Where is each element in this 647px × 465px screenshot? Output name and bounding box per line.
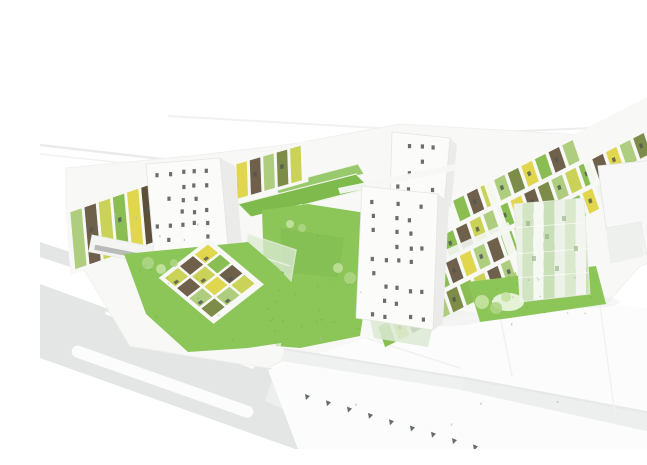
roof-window [253,172,256,177]
grass-dot [349,283,351,285]
facade-window [420,290,423,294]
facade-window [205,169,208,173]
person-speck [557,401,558,403]
grass-dot [512,296,514,298]
facade-window [422,318,425,322]
facade-window [167,238,170,242]
grass-dot [539,296,541,298]
grass-dot [357,328,359,330]
grass-dot [275,301,277,303]
facade-window [383,315,386,319]
facade-window [371,312,374,316]
grass-dot [590,296,592,298]
facade-window [169,224,172,228]
facade-window [420,205,423,209]
roof-panel [290,145,302,183]
facade-window [408,144,411,148]
facade-window [371,257,374,261]
grass-dot [168,283,170,285]
person-speck [115,213,116,215]
grass-dot [519,308,521,310]
facade-window [192,183,195,187]
person-speck [511,323,512,325]
facade-window [395,230,398,234]
facade-window [395,302,398,306]
facade-window [395,245,398,249]
facade-window [421,160,424,164]
roof-panel [236,161,248,199]
facade-window [182,170,185,174]
person-speck [184,239,185,241]
facade-window [167,197,170,201]
facade-window [408,218,411,222]
facade-window [206,234,209,238]
facade-window [372,271,375,275]
facade-window [397,258,400,262]
grass-dot [274,330,276,332]
grass-dot [574,277,576,279]
facade-window [384,285,387,289]
person-speck [197,224,198,226]
grass-dot [508,276,510,278]
grass-dot [567,312,569,314]
roof-panel [263,153,275,191]
glass-stripes [512,196,597,304]
facade-window [410,260,413,264]
grass-dot [270,320,272,322]
tower-facade [146,158,228,254]
grass-dot [228,265,230,267]
facade-window [431,188,434,192]
facade-window [193,169,196,173]
person-speck [355,404,356,406]
glass-stripe [523,196,534,304]
facade-window [409,232,412,236]
grass-dot [197,298,199,300]
facade-window [372,228,375,232]
grass-dot [544,311,546,313]
grass-dot [167,277,169,279]
glass-stripe [544,196,555,304]
facade-window [383,299,386,303]
person-speck [451,424,452,426]
grass-dot [497,288,499,290]
facade-window [206,221,209,225]
roof-window [280,164,283,169]
grass-dot [538,279,540,281]
facade-window [409,289,412,293]
facade-window [420,246,423,250]
facade-window [193,210,196,214]
facade-window [195,197,198,201]
facade-window [181,223,184,227]
facade-window [193,221,196,225]
facade-window [397,202,400,206]
grass-dot [218,314,220,316]
facade-window [156,224,159,228]
facade-window [205,208,208,212]
grass-dot [316,321,318,323]
facade-window [205,183,208,187]
facade-window [410,247,413,251]
tower-facade [356,186,438,330]
facade-window [182,198,185,202]
grass-dot [360,291,362,293]
facade-window [181,209,184,213]
glass-stripe [533,196,544,304]
grass-dot [279,290,281,292]
grass-dot [229,267,231,269]
facade-window [409,315,412,319]
grass-dot [150,269,152,271]
person-speck [320,338,321,340]
facade-window [395,216,398,220]
grass-dot [282,320,284,322]
grass-dot [528,279,530,281]
grass-dot [139,270,141,272]
facade-window [182,185,185,189]
grass-dot [317,235,319,237]
grass-dot [584,312,586,314]
grass-dot [145,265,147,267]
person-speck [159,235,160,237]
facade-window [421,144,424,148]
grass-dot [492,298,494,300]
grass-dot [272,318,274,320]
grass-dot [333,321,335,323]
person-speck [480,403,481,405]
grass-dot [320,319,322,321]
grass-dot [301,326,303,328]
facade-window [396,184,399,188]
facade-window [385,258,388,262]
facade-window [370,200,373,204]
grass-dot [295,293,297,295]
grass-dot [267,308,269,310]
grass-dot [537,277,539,279]
person-speck [112,249,113,251]
facade-window [395,286,398,290]
grass-dot [317,285,319,287]
grass-dot [329,279,331,281]
architectural-rendering [40,16,647,449]
grass-dot [526,306,528,308]
grass-dot [155,315,157,317]
grass-dot [319,309,321,311]
grass-dot [232,339,234,341]
left-tower [146,158,242,254]
facade-window [432,145,435,149]
facade-window [155,173,158,177]
facade-window [169,172,172,176]
grass-dot [516,284,518,286]
facade-window [372,214,375,218]
grass-dot [197,278,199,280]
person-speck [136,217,137,219]
